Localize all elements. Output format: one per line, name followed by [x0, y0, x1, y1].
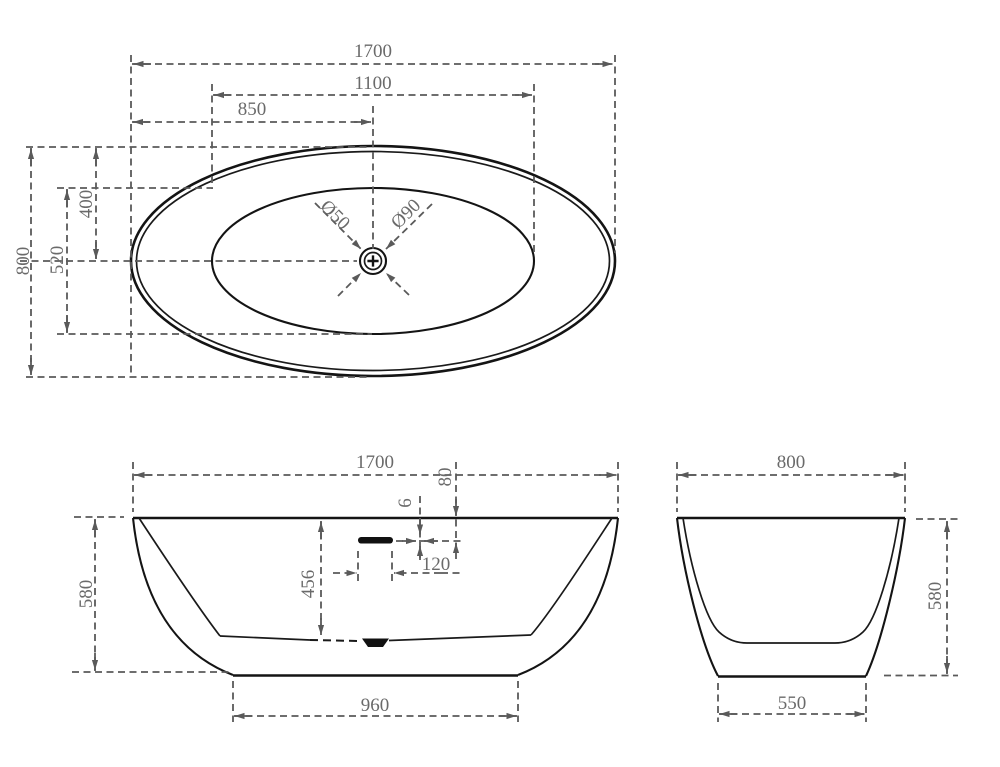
front-inner-bottom-hidden [310, 640, 359, 641]
dim-side-base-width: 550 [718, 683, 866, 722]
dim-front-base-length: 960 [233, 681, 518, 722]
front-view: 1700 80 6 120 [72, 452, 618, 722]
dim-label: 6 [395, 498, 416, 508]
dim-label: 120 [422, 554, 451, 575]
dim-top-drain-from-top: 400 [76, 148, 97, 260]
technical-drawing-page: 1700 1100 850 800 520 [0, 0, 1000, 767]
dim-top-inner-length: 1100 [213, 73, 533, 95]
dim-label: 520 [47, 246, 68, 275]
dim-label: 800 [777, 452, 806, 473]
front-inner-right-curve [531, 518, 612, 635]
dim-label-drain-diameter: Ø50 [316, 196, 354, 234]
dim-label: 1700 [354, 41, 392, 62]
front-outer-right-curve [518, 518, 618, 675]
dim-top-drain-from-left: 850 [132, 99, 372, 122]
dim-front-inner-depth: 456 [298, 521, 321, 636]
dim-label: 400 [76, 190, 97, 219]
dim-label: 960 [361, 695, 390, 716]
dim-top-inner-width: 520 [47, 189, 68, 333]
dim-label: 850 [238, 99, 267, 120]
dim-label: 80 [435, 468, 456, 487]
side-outer-left-curve [677, 518, 718, 676]
dim-front-overall-length: 1700 [133, 452, 618, 512]
top-view: 1700 1100 850 800 520 [13, 41, 615, 377]
front-drain [362, 639, 389, 648]
dim-label: 550 [778, 693, 807, 714]
side-outer-right-curve [866, 518, 905, 676]
dim-side-overall-width: 800 [677, 452, 905, 512]
dim-label: 580 [925, 582, 946, 611]
dim-front-overflow-slot-height: 6 [395, 496, 420, 560]
front-outer-left-curve [133, 518, 233, 675]
bathtub-technical-drawing: 1700 1100 850 800 520 [0, 0, 1000, 767]
drain-cross-icon [367, 255, 378, 266]
dim-label-waste-diameter: Ø90 [387, 195, 425, 233]
dim-front-overflow-width: 120 [333, 551, 461, 584]
dim-label: 456 [298, 570, 319, 599]
dim-top-overall-length: 1700 [132, 41, 614, 64]
front-inner-bottom-right [389, 635, 531, 641]
dim-label: 1100 [354, 73, 391, 94]
front-inner-left-curve [139, 518, 220, 636]
leader-line [386, 273, 409, 295]
dim-top-overall-width: 800 [13, 148, 34, 376]
front-inner-bottom-left [220, 636, 310, 640]
front-overflow-slot [358, 537, 393, 544]
leader-line [338, 273, 361, 296]
dim-label: 580 [76, 580, 97, 609]
dim-front-overflow-drop: 80 [435, 462, 456, 559]
side-view: 800 580 550 [677, 452, 958, 722]
dim-label: 800 [13, 247, 34, 276]
side-inner-profile [683, 518, 899, 643]
dim-label: 1700 [356, 452, 394, 473]
